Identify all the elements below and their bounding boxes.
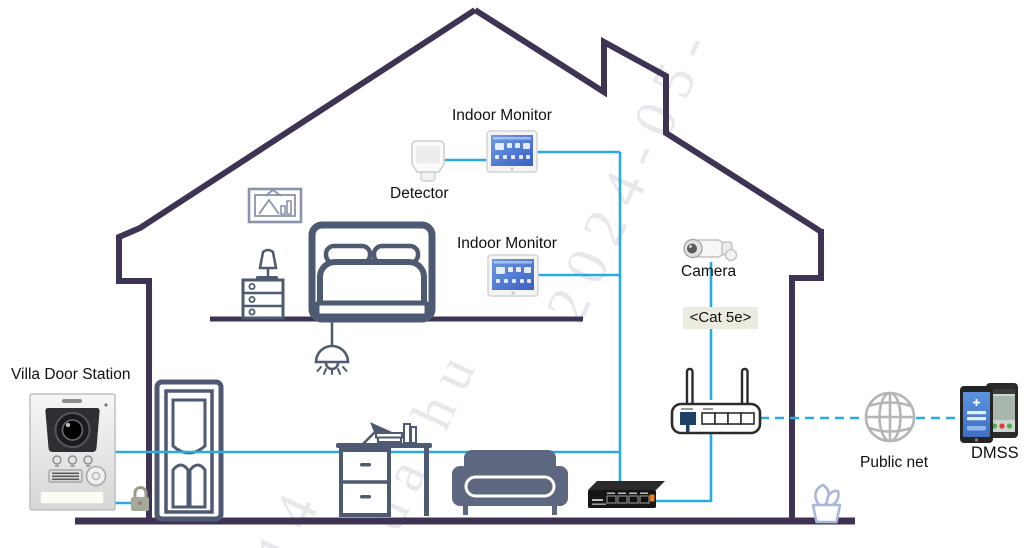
picture-frame-icon <box>249 189 301 222</box>
indoor-monitor-2-label: Indoor Monitor <box>457 235 557 253</box>
dmss-label: DMSS <box>971 444 1019 462</box>
cable-type-tag: <Cat 5e> <box>683 307 758 329</box>
bed-icon <box>312 225 432 319</box>
detector-icon <box>412 141 444 181</box>
books-icon <box>376 424 416 443</box>
indoor-monitor-2-icon <box>488 255 538 296</box>
right-wall <box>792 229 821 519</box>
plant-icon <box>813 485 840 522</box>
dmss-phones-icon <box>960 383 1018 443</box>
nightstand-icon <box>243 250 283 318</box>
camera-icon <box>684 240 737 261</box>
pendant-lamp-icon <box>316 322 348 374</box>
indoor-monitor-1-label: Indoor Monitor <box>452 107 552 125</box>
sofa-icon <box>452 450 568 515</box>
villa-door-station-label: Villa Door Station <box>11 366 130 384</box>
public-net-label: Public net <box>860 454 928 472</box>
smart-home-diagram: 2024-05- da hu 014 <box>0 0 1030 548</box>
detector-label: Detector <box>390 185 449 203</box>
camera-label: Camera <box>681 263 736 281</box>
router-icon <box>672 369 760 433</box>
switch-icon <box>588 481 665 508</box>
globe-icon <box>866 393 914 441</box>
line-router-switch <box>656 434 711 501</box>
desk-icon <box>336 422 432 516</box>
interior-door-icon <box>157 382 221 519</box>
lock-icon <box>131 488 149 511</box>
indoor-monitor-1-icon <box>487 131 537 172</box>
villa-door-station-icon <box>30 394 115 510</box>
